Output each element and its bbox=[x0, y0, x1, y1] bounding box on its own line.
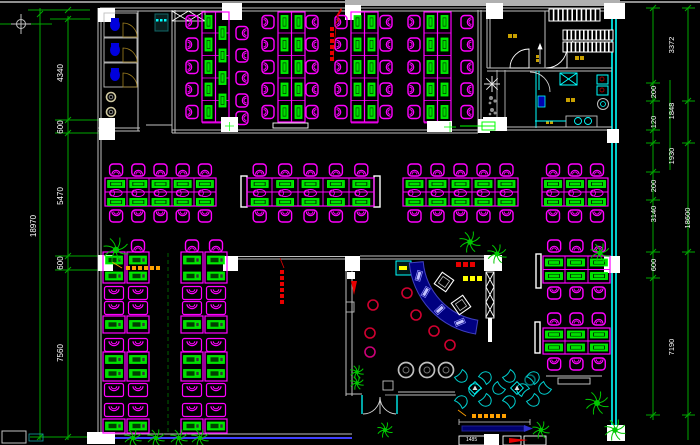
svg-text:18600: 18600 bbox=[683, 208, 692, 229]
svg-text:3372: 3372 bbox=[667, 37, 676, 54]
svg-text:5470: 5470 bbox=[56, 187, 65, 205]
svg-text:600: 600 bbox=[56, 120, 65, 134]
svg-text:120: 120 bbox=[649, 116, 658, 129]
svg-text:18970: 18970 bbox=[29, 214, 38, 237]
svg-text:7560: 7560 bbox=[56, 344, 65, 362]
svg-text:1848: 1848 bbox=[667, 103, 676, 120]
svg-text:1930: 1930 bbox=[667, 148, 676, 165]
svg-text:200: 200 bbox=[649, 86, 658, 99]
svg-text:4340: 4340 bbox=[56, 64, 65, 82]
svg-text:3140: 3140 bbox=[649, 206, 658, 223]
svg-text:200: 200 bbox=[649, 180, 658, 193]
svg-text:1485: 1485 bbox=[466, 437, 477, 443]
svg-text:600: 600 bbox=[649, 259, 658, 272]
svg-text:7190: 7190 bbox=[667, 339, 676, 356]
svg-text:600: 600 bbox=[56, 256, 65, 270]
